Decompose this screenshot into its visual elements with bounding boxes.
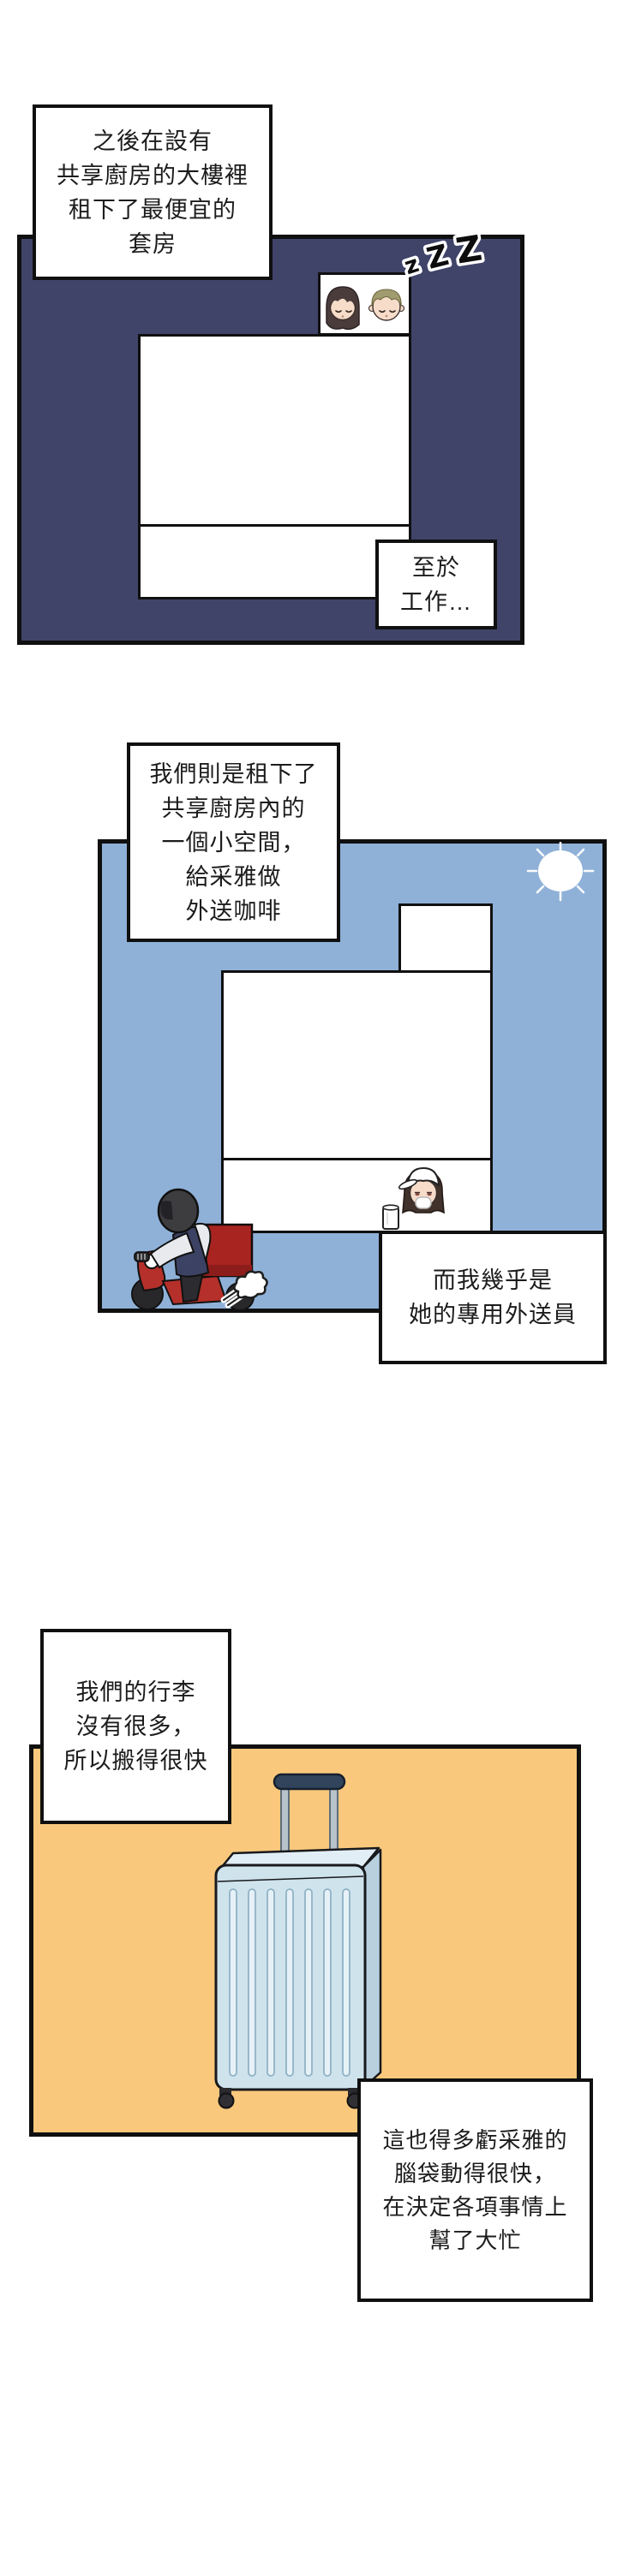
svg-text:Z: Z [453, 227, 485, 271]
narration-box-apartment: 之後在設有 共享廚房的大樓裡 租下了最便宜的 套房 [33, 104, 273, 280]
sun-icon [524, 842, 597, 903]
caption-box-work: 至於 工作… [375, 540, 497, 629]
pillow-box [318, 272, 411, 336]
narration-text: 我們的行李 沒有很多， 所以搬得很快 [64, 1675, 208, 1778]
caption-text: 這也得多虧采雅的 腦袋動得很快， 在決定各項事情上 幫了大忙 [382, 2124, 567, 2257]
barista-character [377, 1158, 461, 1231]
narration-text: 我們則是租下了 共享廚房內的 一個小空間， 給采雅做 外送咖啡 [150, 757, 318, 928]
coffee-cup-icon [383, 1205, 398, 1229]
suitcase-illustration [207, 1769, 387, 2110]
bed [138, 334, 411, 599]
narration-text: 之後在設有 共享廚房的大樓裡 租下了最便宜的 套房 [57, 124, 249, 261]
caption-text: 而我幾乎是 她的專用外送員 [409, 1263, 577, 1332]
caption-box-courier: 而我幾乎是 她的專用外送員 [379, 1231, 607, 1364]
caption-text: 至於 工作… [400, 551, 472, 619]
svg-text:z: z [401, 251, 422, 280]
exhaust-puff-icon [219, 1259, 274, 1309]
svg-text:Z: Z [423, 238, 452, 277]
narration-box-coffee-space: 我們則是租下了 共享廚房內的 一個小空間， 給采雅做 外送咖啡 [127, 742, 340, 942]
narration-box-luggage: 我們的行李 沒有很多， 所以搬得很快 [40, 1629, 231, 1824]
caption-box-thanks: 這也得多虧采雅的 腦袋動得很快， 在決定各項事情上 幫了大忙 [357, 2078, 593, 2302]
zzz-icon: z Z Z [399, 226, 494, 281]
sleeping-couple-illustration [320, 275, 409, 333]
blanket-line [141, 524, 409, 527]
stand-upper-block [398, 903, 493, 973]
comic-page: z Z Z 之後在設有 共享廚房的大樓裡 租下了最便宜的 套房 至於 工作… [0, 0, 617, 2576]
